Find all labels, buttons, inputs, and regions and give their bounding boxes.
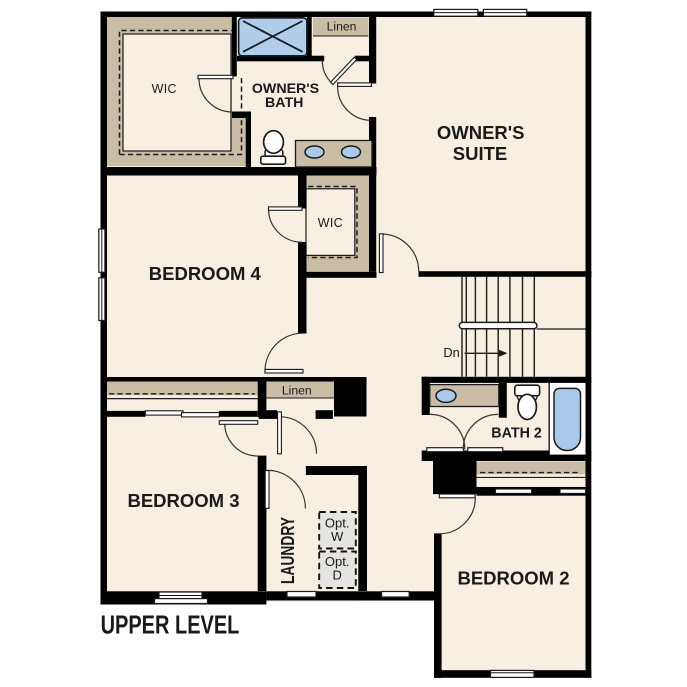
svg-text:BATH: BATH: [265, 95, 303, 111]
svg-text:WIC: WIC: [152, 82, 177, 96]
svg-text:UPPER LEVEL: UPPER LEVEL: [101, 611, 240, 639]
svg-text:BEDROOM 4: BEDROOM 4: [149, 263, 262, 284]
svg-text:W: W: [331, 529, 344, 544]
svg-text:Linen: Linen: [282, 384, 312, 398]
svg-text:BEDROOM 3: BEDROOM 3: [127, 490, 239, 511]
svg-text:Dn: Dn: [443, 345, 459, 360]
svg-text:Linen: Linen: [327, 20, 357, 34]
svg-text:SUITE: SUITE: [453, 143, 507, 164]
svg-text:LAUNDRY: LAUNDRY: [277, 517, 298, 584]
svg-text:BATH 2: BATH 2: [491, 425, 542, 441]
svg-text:WIC: WIC: [318, 216, 343, 230]
svg-text:D: D: [333, 568, 342, 583]
svg-text:OWNER'S: OWNER'S: [437, 122, 525, 143]
svg-text:BEDROOM 2: BEDROOM 2: [457, 568, 569, 589]
